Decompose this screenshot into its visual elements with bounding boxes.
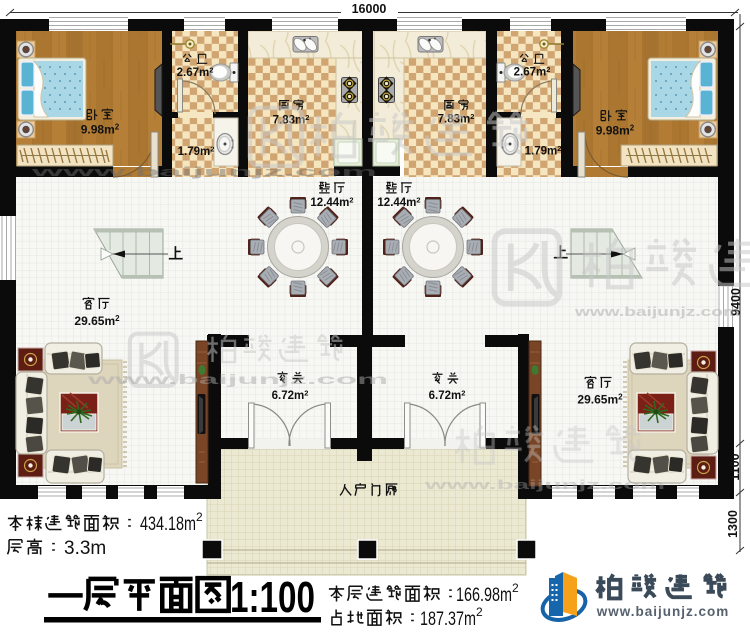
- svg-text:2: 2: [512, 581, 519, 595]
- svg-text:9.98m2: 9.98m2: [81, 123, 120, 137]
- svg-text:www.baijunjz.com: www.baijunjz.com: [574, 304, 740, 319]
- svg-text:12.44m2: 12.44m2: [377, 196, 420, 210]
- svg-text:www.baijunjz.com: www.baijunjz.com: [596, 604, 730, 619]
- svg-text:2.67m2: 2.67m2: [177, 66, 214, 80]
- svg-text:www.baijunjz.com: www.baijunjz.com: [29, 165, 377, 179]
- svg-text:29.65m2: 29.65m2: [74, 314, 120, 328]
- svg-text:6.72m2: 6.72m2: [272, 389, 309, 403]
- svg-text:2.67m2: 2.67m2: [514, 65, 551, 79]
- svg-text:2: 2: [196, 510, 203, 524]
- svg-text:6.72m2: 6.72m2: [429, 389, 466, 403]
- svg-text:434.18m: 434.18m: [140, 514, 196, 535]
- svg-text:1.79m2: 1.79m2: [178, 145, 215, 159]
- svg-text:1300: 1300: [726, 510, 740, 538]
- svg-text:1.79m2: 1.79m2: [525, 144, 562, 158]
- svg-text:1:100: 1:100: [230, 573, 315, 622]
- svg-text:1100: 1100: [728, 453, 742, 480]
- svg-text:3.3m: 3.3m: [64, 538, 106, 559]
- svg-text:166.98m: 166.98m: [456, 585, 512, 606]
- svg-text:www.baijunjz.com: www.baijunjz.com: [85, 372, 388, 387]
- svg-text:9.98m2: 9.98m2: [596, 124, 635, 138]
- svg-text:2: 2: [476, 605, 483, 619]
- svg-text:16000: 16000: [352, 2, 387, 16]
- svg-text:12.44m2: 12.44m2: [310, 196, 353, 210]
- svg-text:29.65m2: 29.65m2: [577, 393, 623, 407]
- svg-text:187.37m: 187.37m: [420, 609, 476, 630]
- svg-text:www.baijunjz.com: www.baijunjz.com: [423, 478, 665, 492]
